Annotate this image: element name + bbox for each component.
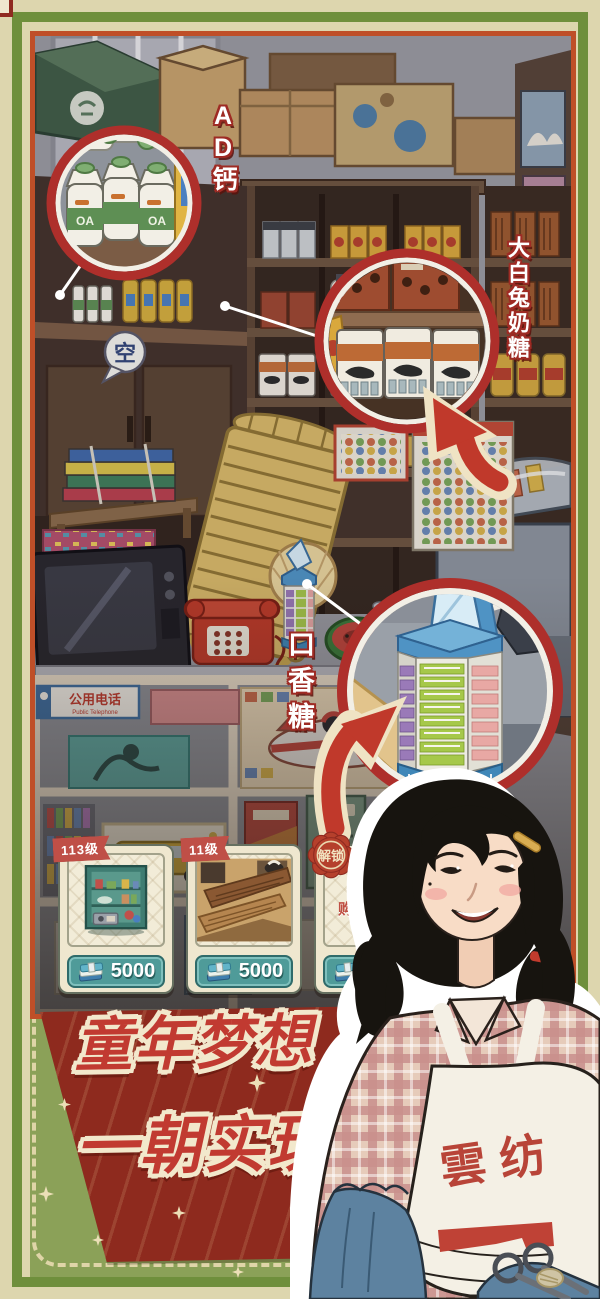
price-value: 5000 xyxy=(239,960,284,983)
card-image-shelf xyxy=(67,853,165,947)
label-gum: 口香糖 xyxy=(285,630,312,738)
level-tag: 113级 xyxy=(52,836,110,863)
upgrade-card-shelf[interactable]: 113级 xyxy=(58,844,174,994)
shopkeeper-character: 雲纺 xyxy=(290,768,600,1299)
price-button-shelf[interactable]: 5000 xyxy=(67,955,165,988)
money-icon xyxy=(77,962,105,982)
price-value: 5000 xyxy=(111,960,156,983)
level-tag: 11级 xyxy=(180,836,230,863)
card-image-room xyxy=(195,853,293,947)
label-white-rabbit: 大白兔奶糖 xyxy=(506,236,528,361)
ad-page: 空 xyxy=(0,0,600,1299)
callout-white-rabbit xyxy=(317,251,499,433)
upgrade-card-room[interactable]: 11级 xyxy=(186,844,302,994)
corner-frame-fragment xyxy=(0,0,13,17)
slogan-line-1: 童年梦想 xyxy=(73,1013,325,1076)
apron-strap-right xyxy=(524,1008,536,1068)
svg-text:OA: OA xyxy=(148,214,166,228)
svg-text:OA: OA xyxy=(76,214,94,228)
money-icon xyxy=(205,962,233,982)
price-button-room[interactable]: 5000 xyxy=(195,955,293,988)
label-ad-calcium: AD钙 xyxy=(210,102,235,195)
